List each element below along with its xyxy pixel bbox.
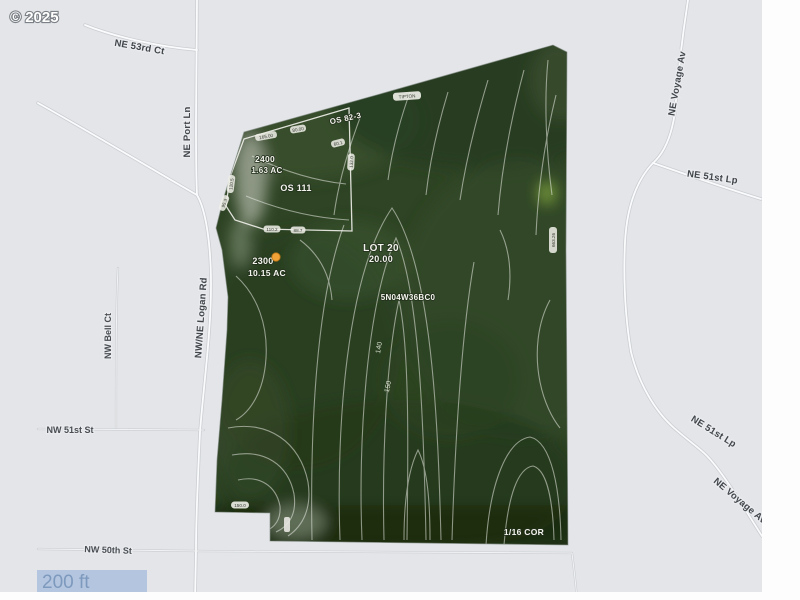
street-label-nw-bell-ct: NW Bell Ct bbox=[103, 313, 113, 359]
edge-dimension-label: 110.2 bbox=[264, 226, 281, 233]
svg-text:110.2: 110.2 bbox=[266, 227, 278, 232]
svg-text:150.0: 150.0 bbox=[234, 503, 246, 508]
street-label-nw-50th-st: NW 50th St bbox=[84, 544, 132, 556]
taxlot-2400-acreage: 1.63 AC bbox=[251, 166, 282, 175]
edge-dimension-label: 150.0 bbox=[231, 502, 249, 509]
copyright-watermark: © 2025 bbox=[10, 9, 59, 26]
scale-bar: 200 ft bbox=[37, 570, 147, 593]
edge-dimension-label: 663.26 bbox=[549, 227, 557, 253]
sixteenth-corner-label: 1/16 COR bbox=[504, 527, 544, 537]
svg-text:132.0: 132.0 bbox=[349, 156, 355, 168]
map-viewer[interactable]: 2400 1.63 AC OS 111 OS 82-3 LOT 20 20.00… bbox=[0, 0, 800, 600]
lot-value: 20.00 bbox=[369, 254, 393, 264]
street-label-ne-port-ln: NE Port Ln bbox=[182, 106, 193, 157]
right-margin bbox=[762, 0, 800, 600]
taxlot-2300-acreage: 10.15 AC bbox=[248, 268, 286, 278]
svg-text:88.7: 88.7 bbox=[294, 228, 303, 233]
scale-bar-label: 200 ft bbox=[42, 572, 90, 593]
map-code: 5N04W36BC0 bbox=[381, 293, 436, 302]
taxlot-2400-number: 2400 bbox=[255, 154, 275, 164]
bottom-margin bbox=[0, 592, 800, 600]
edge-dimension-label: 88.7 bbox=[291, 227, 306, 234]
taxlot-2300-number: 2300 bbox=[252, 256, 273, 266]
parcel-marker-dot[interactable] bbox=[272, 253, 280, 261]
edge-dimension-label: 132.0 bbox=[347, 153, 355, 170]
svg-text:663.26: 663.26 bbox=[551, 233, 556, 247]
survey-ref-os111: OS 111 bbox=[280, 183, 311, 193]
lot-label: LOT 20 bbox=[363, 243, 399, 254]
street-label-nw-51st-st: NW 51st St bbox=[46, 425, 93, 435]
map-canvas[interactable]: 2400 1.63 AC OS 111 OS 82-3 LOT 20 20.00… bbox=[0, 0, 800, 600]
